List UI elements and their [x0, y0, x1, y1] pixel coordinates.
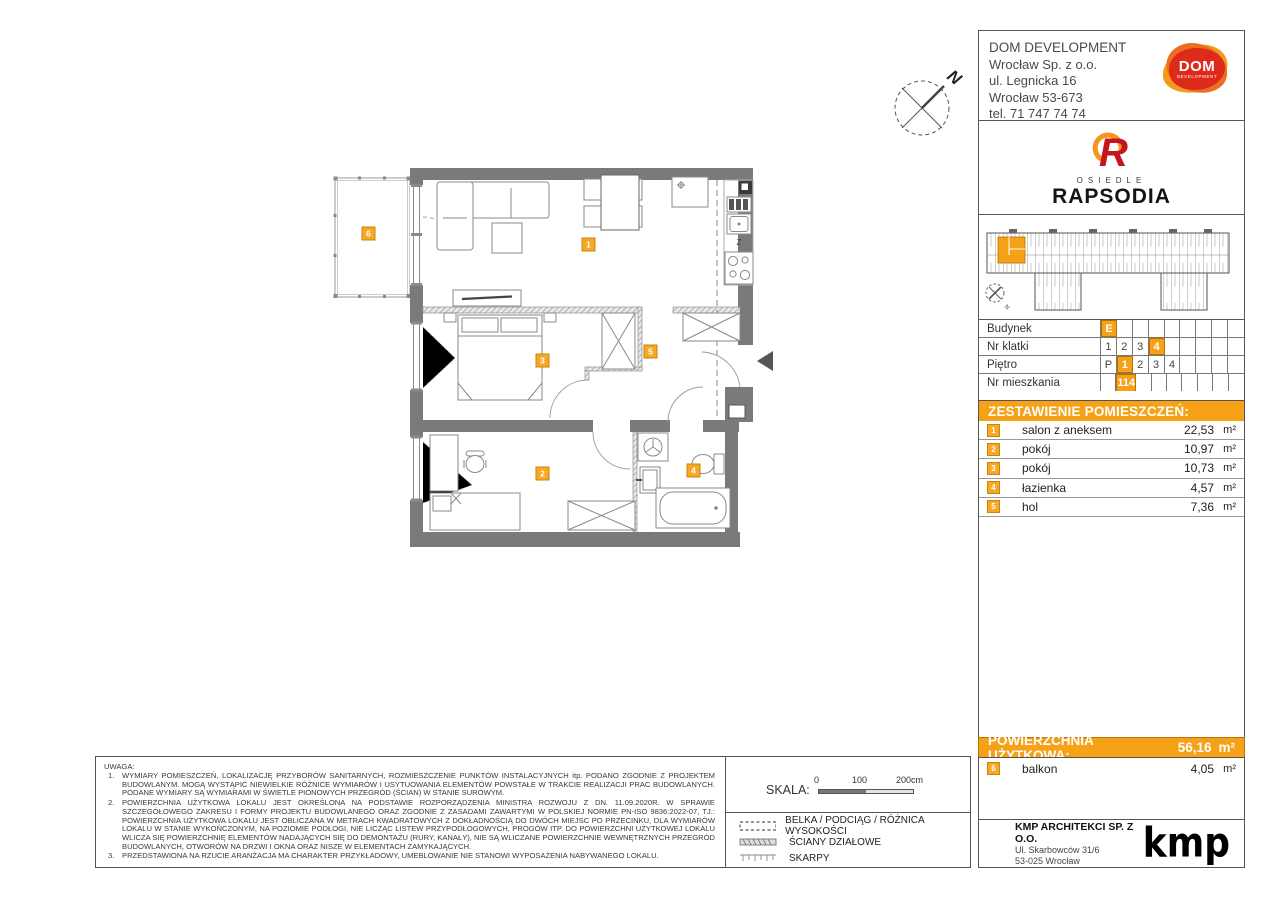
- room-area-unit: m²: [1214, 462, 1236, 474]
- room-label: hol: [1022, 500, 1191, 514]
- developer-street: ul. Legnicka 16: [989, 73, 1126, 90]
- badge-hall: 5: [644, 345, 657, 358]
- room-label: pokój: [1022, 461, 1184, 475]
- room-number-badge: 6: [987, 762, 1000, 775]
- room-area: 4,05: [1191, 762, 1214, 776]
- room-row: 4 łazienka 4,57 m²: [979, 479, 1244, 498]
- dining-set: [584, 175, 642, 230]
- legend-row: SKARPY: [738, 850, 970, 866]
- highlighted-unit: [998, 237, 1025, 263]
- desk-chair: [464, 451, 486, 473]
- unit-table-cell: 3: [1149, 356, 1165, 373]
- room-label: łazienka: [1022, 481, 1191, 495]
- room-number-badge: 5: [987, 500, 1000, 513]
- room-number-badge: 2: [987, 443, 1000, 456]
- room-row: 6 balkon 4,05 m²: [979, 758, 1244, 779]
- rooms-table: 1 salon z aneksem 22,53 m² 2 pokój 10,97…: [978, 421, 1245, 518]
- rooms-header: ZESTAWIENIE POMIESZCZEŃ:: [978, 400, 1245, 422]
- panel-empty-area: [978, 517, 1245, 737]
- kitchen-cabinet: [672, 177, 708, 207]
- scale-tick-100: 100: [852, 775, 867, 785]
- developer-name: DOM DEVELOPMENT: [989, 40, 1126, 57]
- room-row: 2 pokój 10,97 m²: [979, 440, 1244, 459]
- coffee-table: [492, 223, 522, 253]
- svg-text:R: R: [1099, 131, 1128, 174]
- site-compass: N: [986, 284, 1010, 312]
- kmp-logo: kmp: [1143, 823, 1230, 864]
- bedroom-wardrobe: [602, 313, 635, 369]
- room-area: 22,53: [1184, 423, 1214, 437]
- legend-box: BELKA / PODCIĄG / RÓŻNICA WYSOKOŚCI ŚCIA…: [725, 812, 971, 868]
- unit-table-cell: 1: [1117, 356, 1133, 373]
- unit-table-cell: 114: [1116, 374, 1136, 392]
- svg-text:3: 3: [540, 356, 545, 366]
- table-row: Budynek E: [979, 320, 1244, 338]
- nightstand: [444, 313, 456, 322]
- room-area-unit: m²: [1214, 482, 1236, 494]
- notes-title: UWAGA:: [104, 762, 715, 771]
- room-area-unit: m²: [1214, 763, 1236, 775]
- room-label: pokój: [1022, 442, 1184, 456]
- wardrobe-2: [568, 501, 635, 530]
- rooms-header-label: ZESTAWIENIE POMIESZCZEŃ:: [988, 404, 1189, 419]
- room-area: 10,97: [1184, 442, 1214, 456]
- scale-tick-0: 0: [814, 775, 819, 785]
- shelf: [430, 435, 458, 491]
- architect-address1: Ul. Skarbowców 31/6: [1015, 845, 1143, 856]
- scale-label: SKALA:: [766, 783, 810, 797]
- unit-table-cell: 3: [1133, 338, 1149, 355]
- beam-legend-icon: [738, 820, 776, 832]
- nightstand: [544, 313, 556, 322]
- svg-text:5: 5: [648, 347, 653, 357]
- badge-balcony: 6: [362, 227, 375, 240]
- svg-text:2: 2: [540, 469, 545, 479]
- room-label: balkon: [1022, 762, 1191, 776]
- row-label: Piętro: [979, 356, 1101, 373]
- architect-address2: 53-025 Wrocław: [1015, 856, 1143, 867]
- washing-machine: [638, 433, 668, 461]
- estate-name: RAPSODIA: [1052, 185, 1171, 209]
- legend-row: BELKA / PODCIĄG / RÓŻNICA WYSOKOŚCI: [738, 818, 970, 834]
- single-bed: [430, 493, 520, 530]
- room-area: 7,36: [1191, 500, 1214, 514]
- room-area-unit: m²: [1214, 501, 1236, 513]
- room-number-badge: 3: [987, 462, 1000, 475]
- kitchen-sink: [727, 214, 751, 234]
- svg-text:N: N: [1003, 304, 1011, 312]
- room-row: 5 hol 7,36 m²: [979, 498, 1244, 517]
- svg-text:6: 6: [366, 229, 371, 239]
- north-label: N: [944, 66, 966, 89]
- building-site-plan: N: [979, 215, 1244, 319]
- unit-table-cell: E: [1101, 320, 1117, 337]
- bathtub: [656, 488, 730, 528]
- svg-text:4: 4: [691, 466, 696, 476]
- scale-tick-200: 200cm: [896, 775, 923, 785]
- unit-table-cell: 4: [1149, 338, 1165, 355]
- stove: [725, 252, 753, 284]
- svg-text:1: 1: [586, 240, 591, 250]
- estate-label: OSIEDLE: [1077, 176, 1147, 185]
- fridge-z-label: Z: [737, 238, 742, 247]
- unit-table-cell: P: [1101, 356, 1117, 373]
- legend-label: BELKA / PODCIĄG / RÓŻNICA WYSOKOŚCI: [785, 815, 970, 837]
- row-label: Nr mieszkania: [979, 374, 1101, 392]
- panel-empty-area: [978, 779, 1245, 820]
- estate-logo-panel: R OSIEDLE RAPSODIA: [978, 120, 1245, 215]
- entry-niche: [729, 405, 745, 418]
- legend-label: ŚCIANY DZIAŁOWE: [789, 837, 881, 848]
- room-number-badge: 1: [987, 424, 1000, 437]
- unit-table-cell: 1: [1101, 338, 1117, 355]
- row-label: Budynek: [979, 320, 1101, 337]
- usable-area-value: 56,16: [1178, 740, 1212, 755]
- rapsodia-r-logo: R: [1089, 126, 1135, 174]
- architect-panel: KMP ARCHITEKCI SP. Z O.O. Ul. Skarbowców…: [978, 819, 1245, 868]
- room-area: 4,57: [1191, 481, 1214, 495]
- dom-logo-text: DOM: [1179, 60, 1216, 74]
- room-area-unit: m²: [1214, 443, 1236, 455]
- unit-table-cell: 2: [1133, 356, 1149, 373]
- floor-plan-sheet: { "developer": { "name": "DOM DEVELOPMEN…: [0, 0, 1273, 900]
- usable-area-bar: POWIERZCHNIA UŻYTKOWA: 56,16m²: [978, 737, 1245, 758]
- kitchen-drawers: [727, 197, 751, 212]
- dom-development-logo: DOM DEVELOPMENT: [1158, 42, 1234, 98]
- room-row: 1 salon z aneksem 22,53 m²: [979, 421, 1244, 440]
- site-plan-panel: N: [978, 214, 1245, 320]
- hall-wardrobe: [683, 313, 740, 341]
- north-compass: N: [880, 50, 970, 150]
- badge-salon: 1: [582, 238, 595, 251]
- table-row: Piętro P 1 2 3 4: [979, 356, 1244, 374]
- developer-company: Wrocław Sp. z o.o.: [989, 57, 1126, 74]
- scale-box: SKALA: 0 100 200cm: [725, 756, 971, 813]
- table-row: Nr mieszkania 114: [979, 374, 1244, 392]
- partition-legend-icon: [738, 836, 780, 848]
- note-item: WYMIARY POMIESZCZEŃ, LOKALIZACJĘ PRZYBOR…: [104, 772, 715, 798]
- note-item: PRZEDSTAWIONA NA RZUCIE ARANŻACJA MA CHA…: [104, 852, 715, 861]
- apartment-floor-plan: 1 2 3 4 5 6 Z: [320, 155, 780, 565]
- usable-area-unit: m²: [1219, 740, 1236, 755]
- balcony-row-box: 6 balkon 4,05 m²: [978, 757, 1245, 780]
- dom-logo-subtext: DEVELOPMENT: [1177, 74, 1218, 79]
- entrance-arrow: [757, 351, 773, 371]
- architect-name: KMP ARCHITEKCI SP. Z O.O.: [1015, 821, 1143, 845]
- double-bed: [458, 315, 542, 400]
- unit-table-cell: 2: [1117, 338, 1133, 355]
- room-row: 3 pokój 10,73 m²: [979, 459, 1244, 478]
- slope-legend-icon: [738, 852, 780, 864]
- legend-label: SKARPY: [789, 853, 830, 864]
- room-area-unit: m²: [1214, 424, 1236, 436]
- badge-room3: 3: [536, 354, 549, 367]
- room-label: salon z aneksem: [1022, 423, 1184, 437]
- notes-box: UWAGA: WYMIARY POMIESZCZEŃ, LOKALIZACJĘ …: [95, 756, 726, 868]
- row-label: Nr klatki: [979, 338, 1101, 355]
- developer-city: Wrocław 53-673: [989, 90, 1126, 107]
- badge-bathroom: 4: [687, 464, 700, 477]
- room-area: 10,73: [1184, 461, 1214, 475]
- note-item: POWIERZCHNIA UŻYTKOWA LOKALU JEST OKREŚL…: [104, 799, 715, 851]
- room-number-badge: 4: [987, 481, 1000, 494]
- windows: [410, 184, 423, 502]
- table-row: Nr klatki 1 2 3 4: [979, 338, 1244, 356]
- badge-room2: 2: [536, 467, 549, 480]
- developer-info-panel: DOM DEVELOPMENT Wrocław Sp. z o.o. ul. L…: [978, 30, 1245, 121]
- unit-table-cell: 4: [1165, 356, 1181, 373]
- scale-bar: [818, 789, 914, 794]
- unit-info-table: Budynek E Nr klatki 1 2 3 4 Piętro P 1 2…: [978, 319, 1245, 392]
